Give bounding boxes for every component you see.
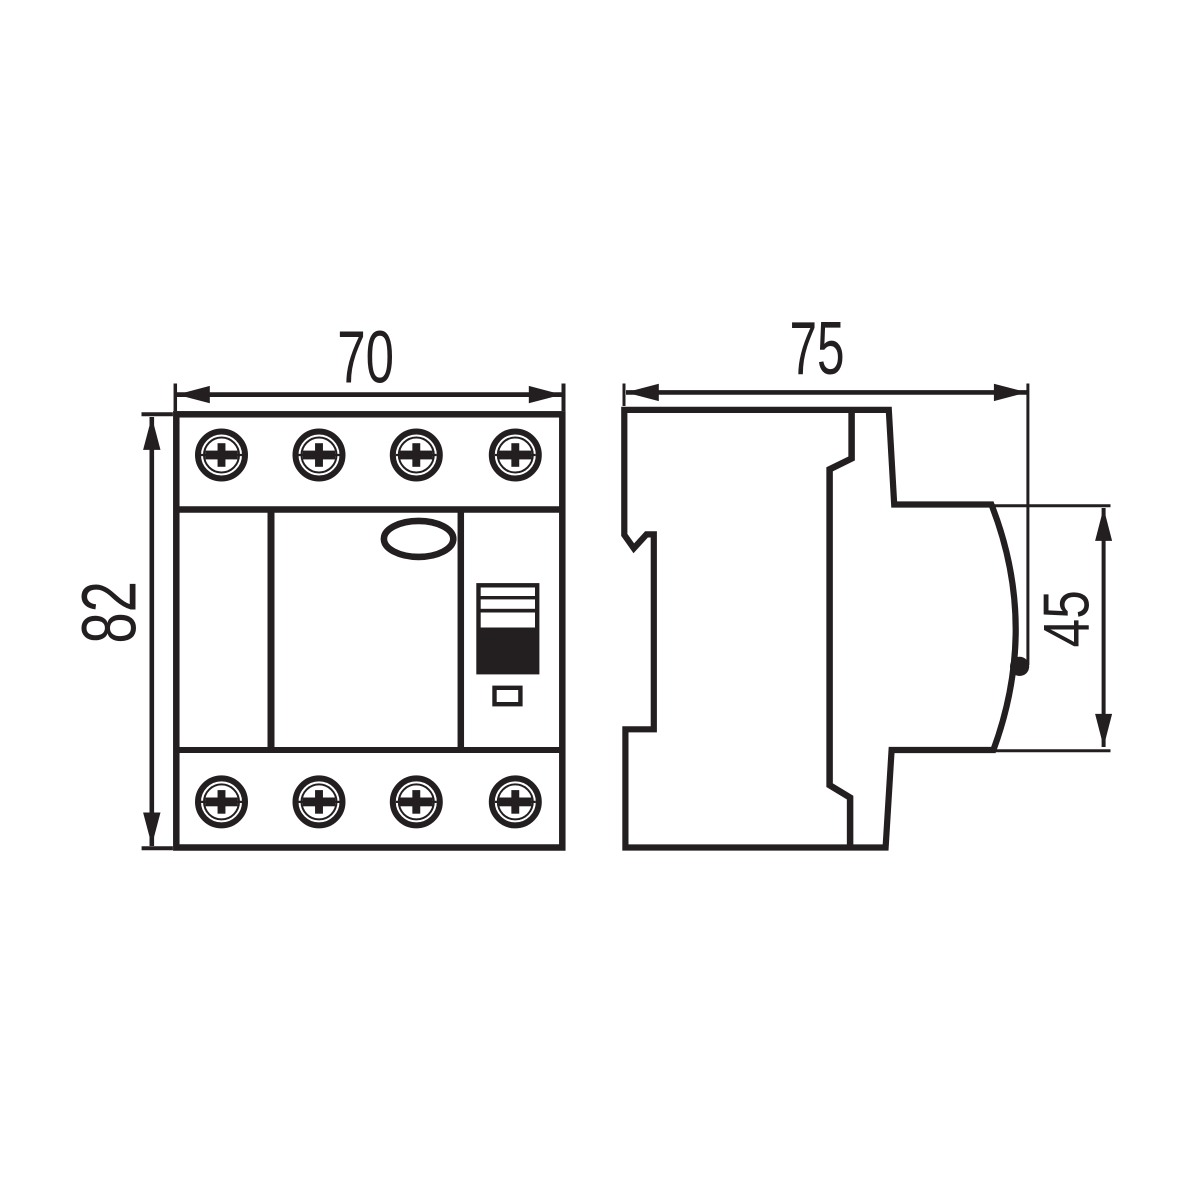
svg-text:75: 75 <box>789 307 844 391</box>
svg-text:70: 70 <box>337 316 394 399</box>
svg-text:45: 45 <box>1031 590 1103 647</box>
svg-text:82: 82 <box>67 581 153 644</box>
